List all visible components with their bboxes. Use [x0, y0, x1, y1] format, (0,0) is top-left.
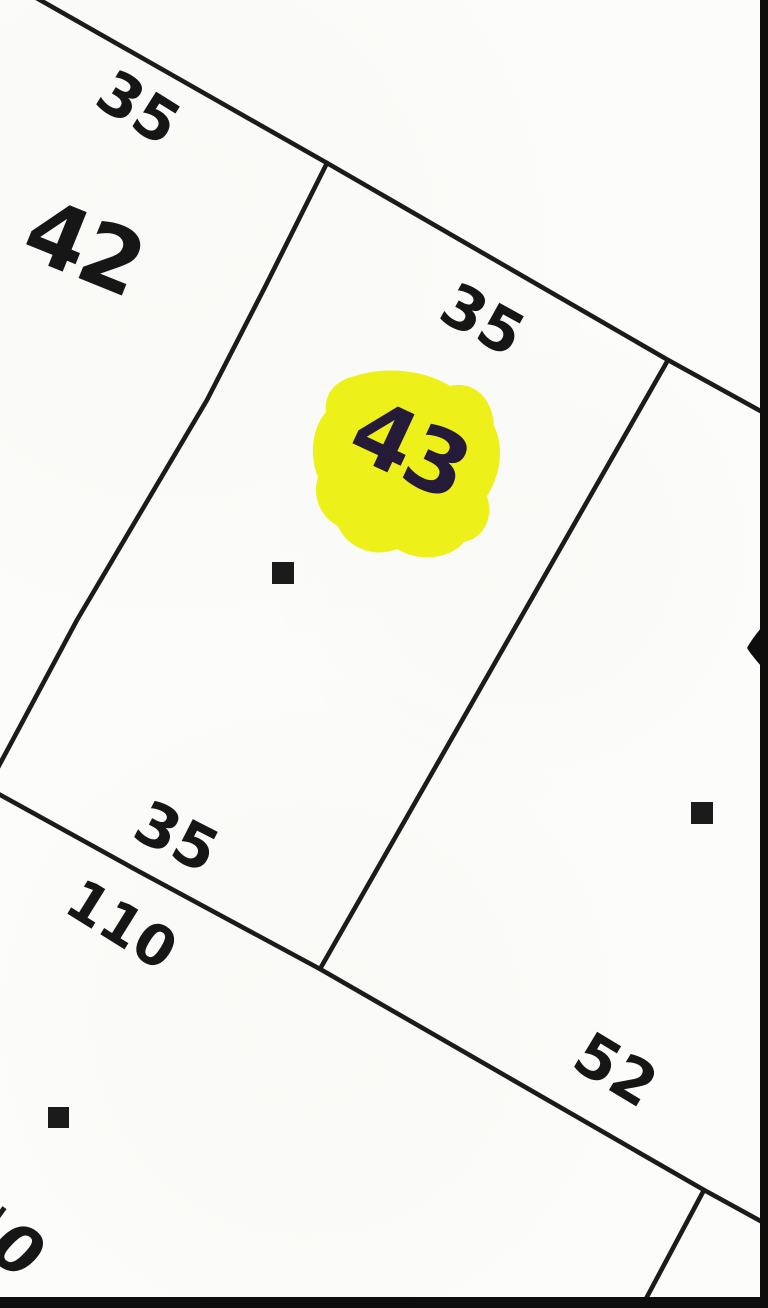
bottom-border — [0, 1297, 768, 1308]
street-frontage-line — [33, 0, 766, 414]
lot-number-42[interactable]: 42 — [10, 178, 157, 317]
parcel-marker-square-lower-lot — [48, 1107, 69, 1128]
parcel-marker-square-right-lot — [691, 802, 713, 824]
cut-off-digit-bottom-left: 0 — [0, 1208, 63, 1291]
lower-right-boundary-line — [640, 1190, 704, 1308]
cut-off-glyph-right-edge — [747, 628, 761, 666]
dimension-label-lot43-frontage: 35 — [429, 270, 536, 372]
dimension-label-right-lot-rear: 52 — [561, 1019, 669, 1122]
parcel-marker-square-lot43 — [272, 562, 294, 584]
dimension-label-lot42-frontage: 35 — [84, 57, 192, 161]
cut-off-digit-fragment — [0, 1206, 7, 1221]
parcel-map-canvas: 35 35 35 110 52 0 42 43 — [0, 0, 768, 1308]
right-border — [760, 0, 768, 1308]
parcel-map-svg: 35 35 35 110 52 0 42 43 — [0, 0, 768, 1308]
